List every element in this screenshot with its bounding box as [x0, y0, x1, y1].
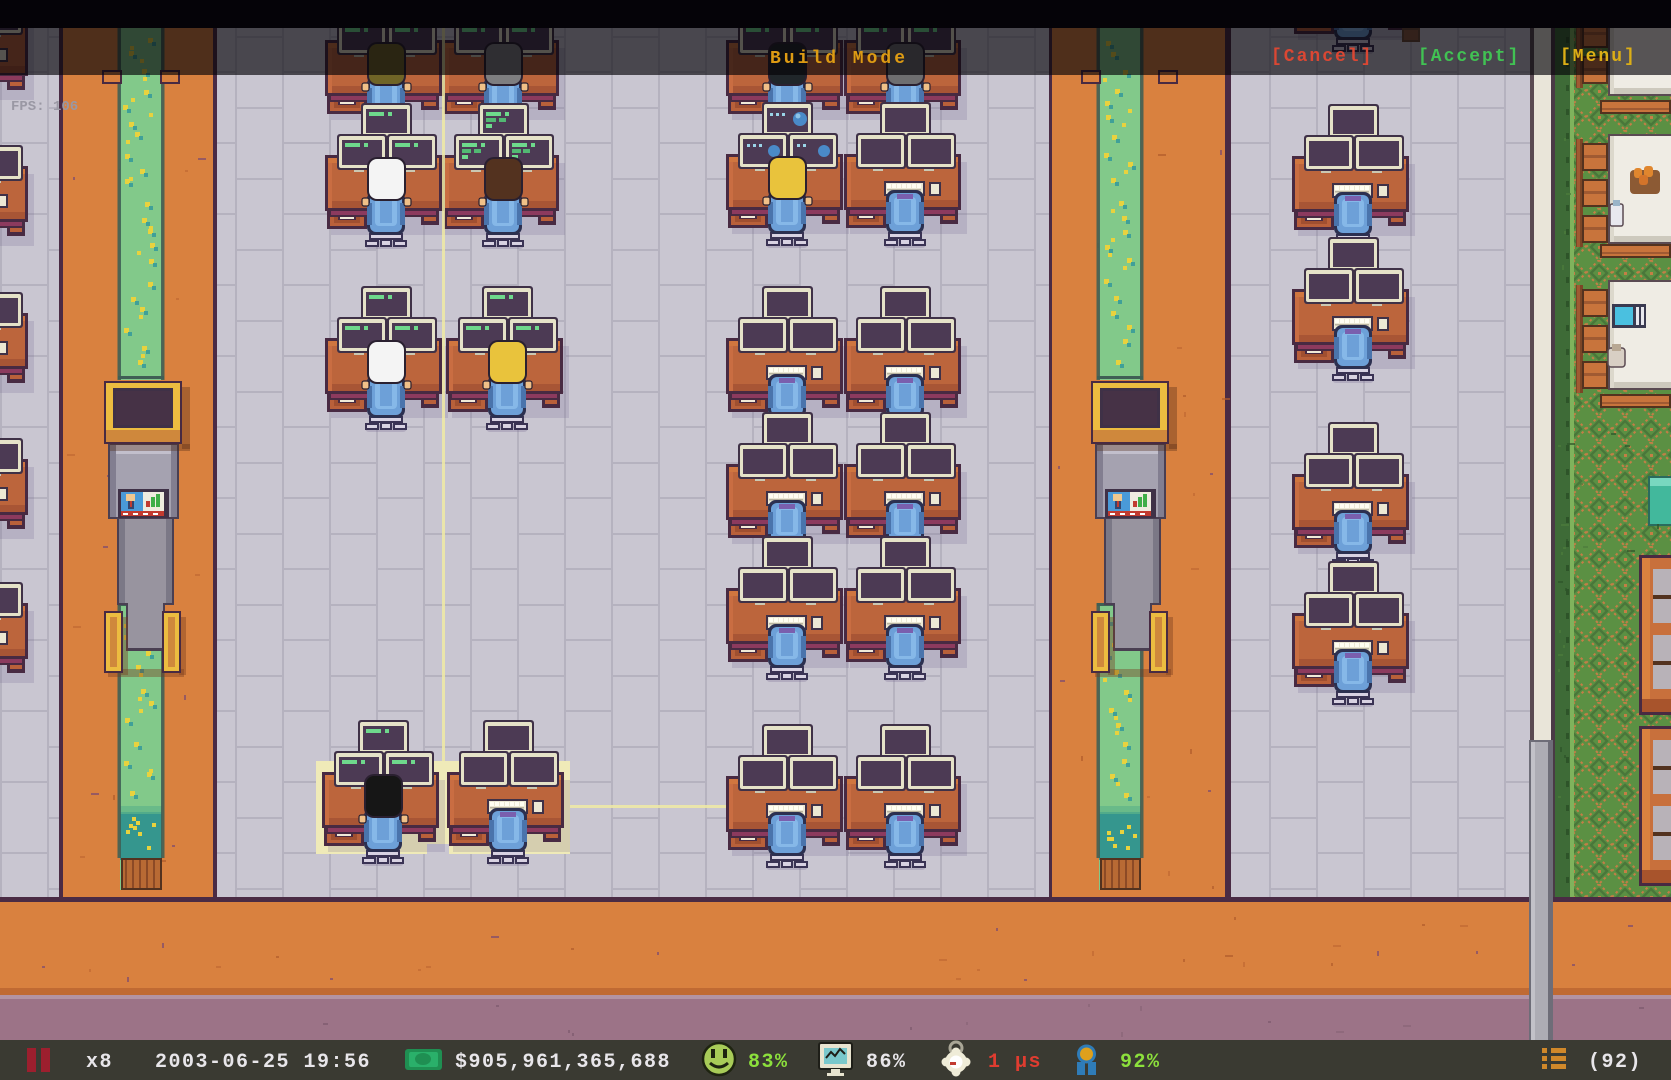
svg-text:86%: 86%: [866, 1051, 907, 1074]
svg-text:[Cancel]: [Cancel]: [1271, 47, 1373, 67]
svg-text:83%: 83%: [748, 1051, 789, 1074]
svg-text:FPS: 106: FPS: 106: [11, 99, 78, 115]
svg-text:x8: x8: [86, 1051, 113, 1074]
svg-text:[Accept]: [Accept]: [1418, 47, 1520, 67]
svg-text:92%: 92%: [1120, 1051, 1161, 1074]
svg-text:[Menu]: [Menu]: [1560, 47, 1637, 67]
svg-text:(92): (92): [1588, 1051, 1642, 1074]
svg-text:2003-06-25 19:56: 2003-06-25 19:56: [155, 1051, 371, 1074]
svg-text:$905,961,365,688: $905,961,365,688: [455, 1051, 671, 1074]
svg-text:Build Mode: Build Mode: [770, 49, 908, 69]
svg-text:1 μs: 1 μs: [988, 1051, 1042, 1074]
